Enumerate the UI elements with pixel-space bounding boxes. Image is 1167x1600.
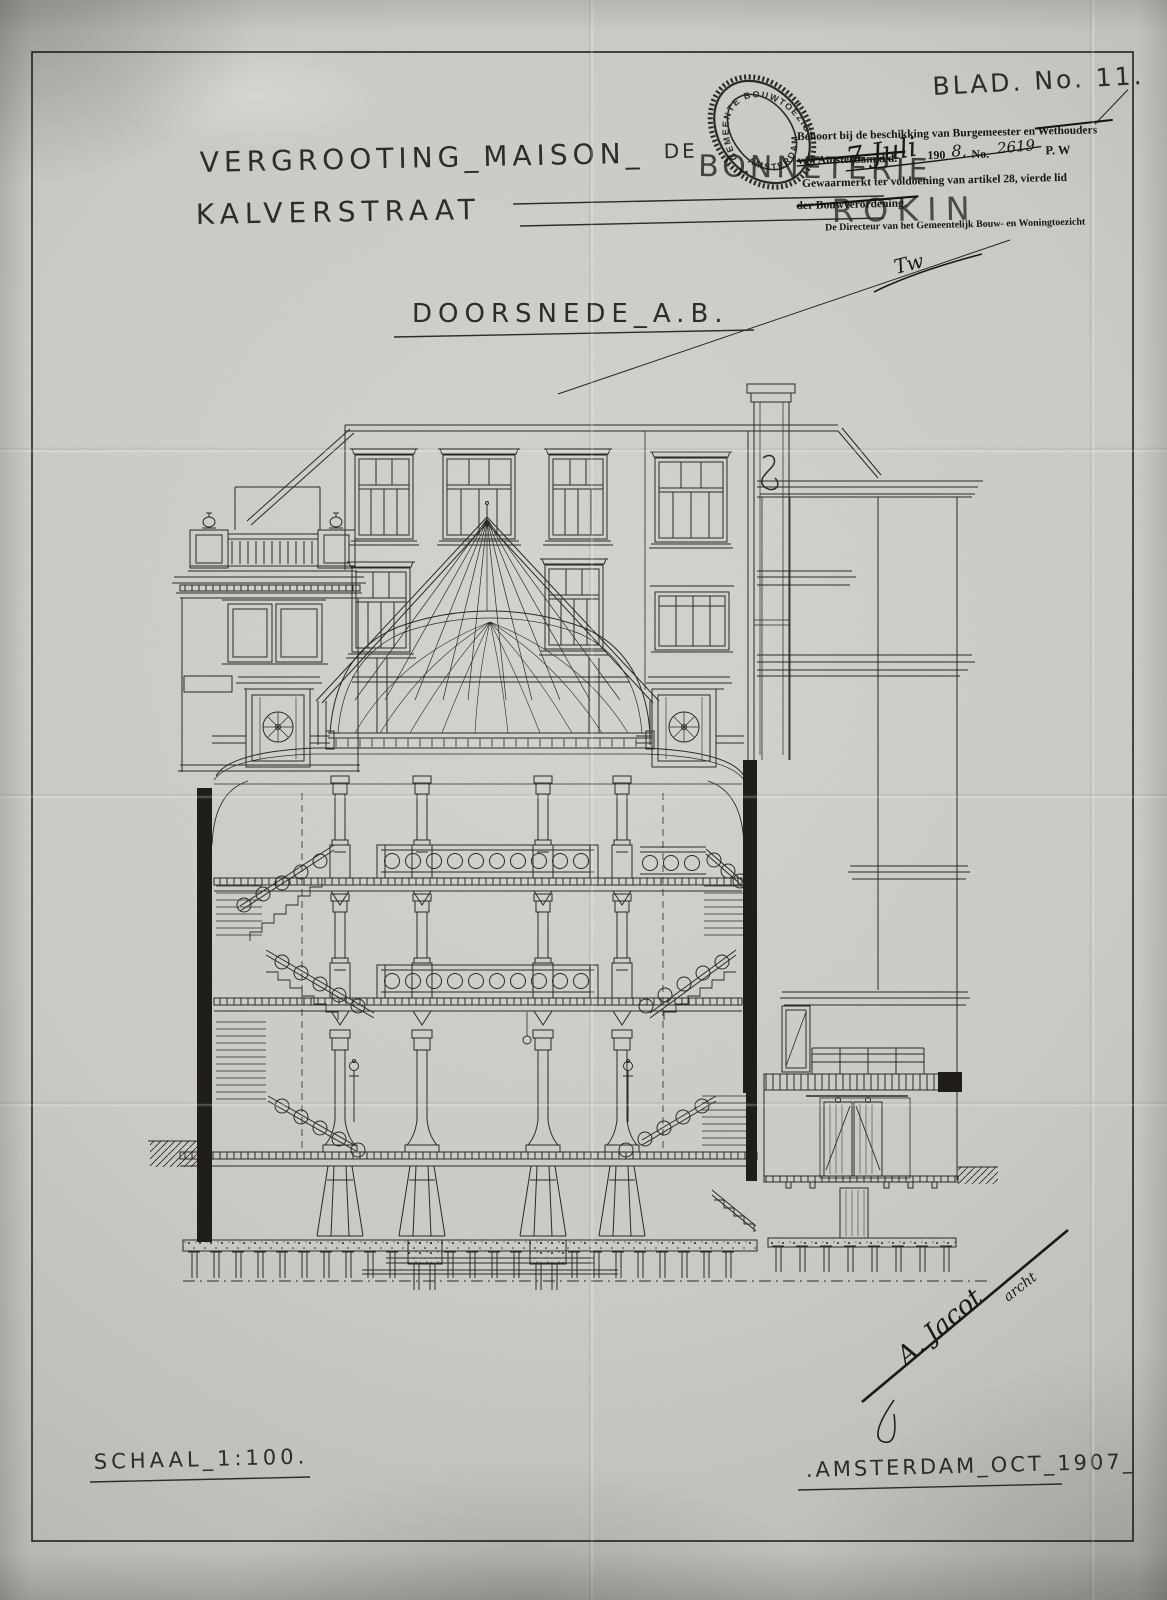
section-drawing-canvas: BLAD. No. 11. VERGROOTING_MAISON_ DE BON… — [0, 0, 1167, 1600]
drawing-sheet: BLAD. No. 11. VERGROOTING_MAISON_ DE BON… — [0, 0, 1167, 1600]
paper-grain — [0, 0, 1167, 1600]
